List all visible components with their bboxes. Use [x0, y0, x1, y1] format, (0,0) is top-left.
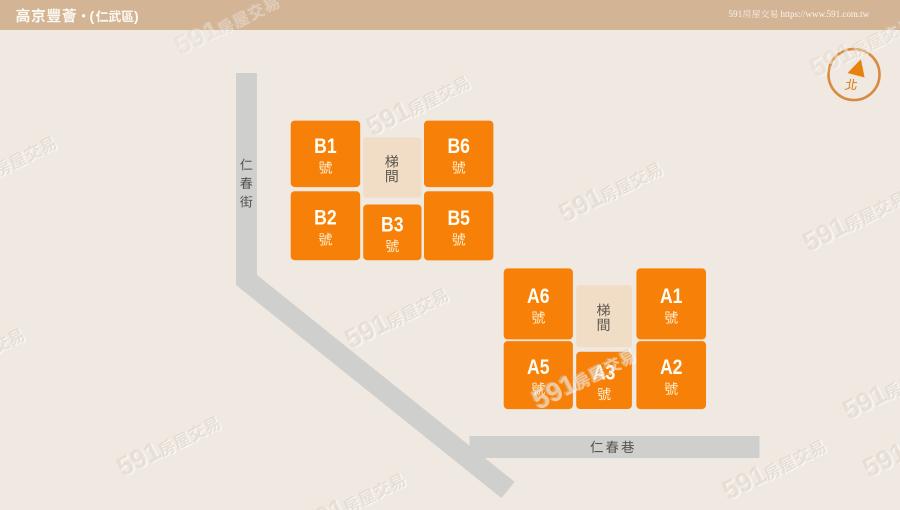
svg-text:(: (: [90, 8, 95, 24]
svg-text:B5: B5: [447, 206, 470, 230]
svg-text:): ): [134, 8, 139, 24]
svg-text:https://www.591.com.tw: https://www.591.com.tw: [781, 9, 870, 19]
svg-text:A6: A6: [527, 284, 550, 308]
svg-text:B3: B3: [381, 212, 404, 236]
svg-text:B1: B1: [314, 134, 337, 158]
svg-text:A5: A5: [527, 355, 550, 379]
svg-text:A2: A2: [660, 355, 683, 379]
svg-text:B2: B2: [314, 206, 337, 230]
svg-text:A1: A1: [660, 284, 683, 308]
svg-text:591: 591: [729, 9, 743, 19]
svg-text:B6: B6: [447, 134, 470, 158]
